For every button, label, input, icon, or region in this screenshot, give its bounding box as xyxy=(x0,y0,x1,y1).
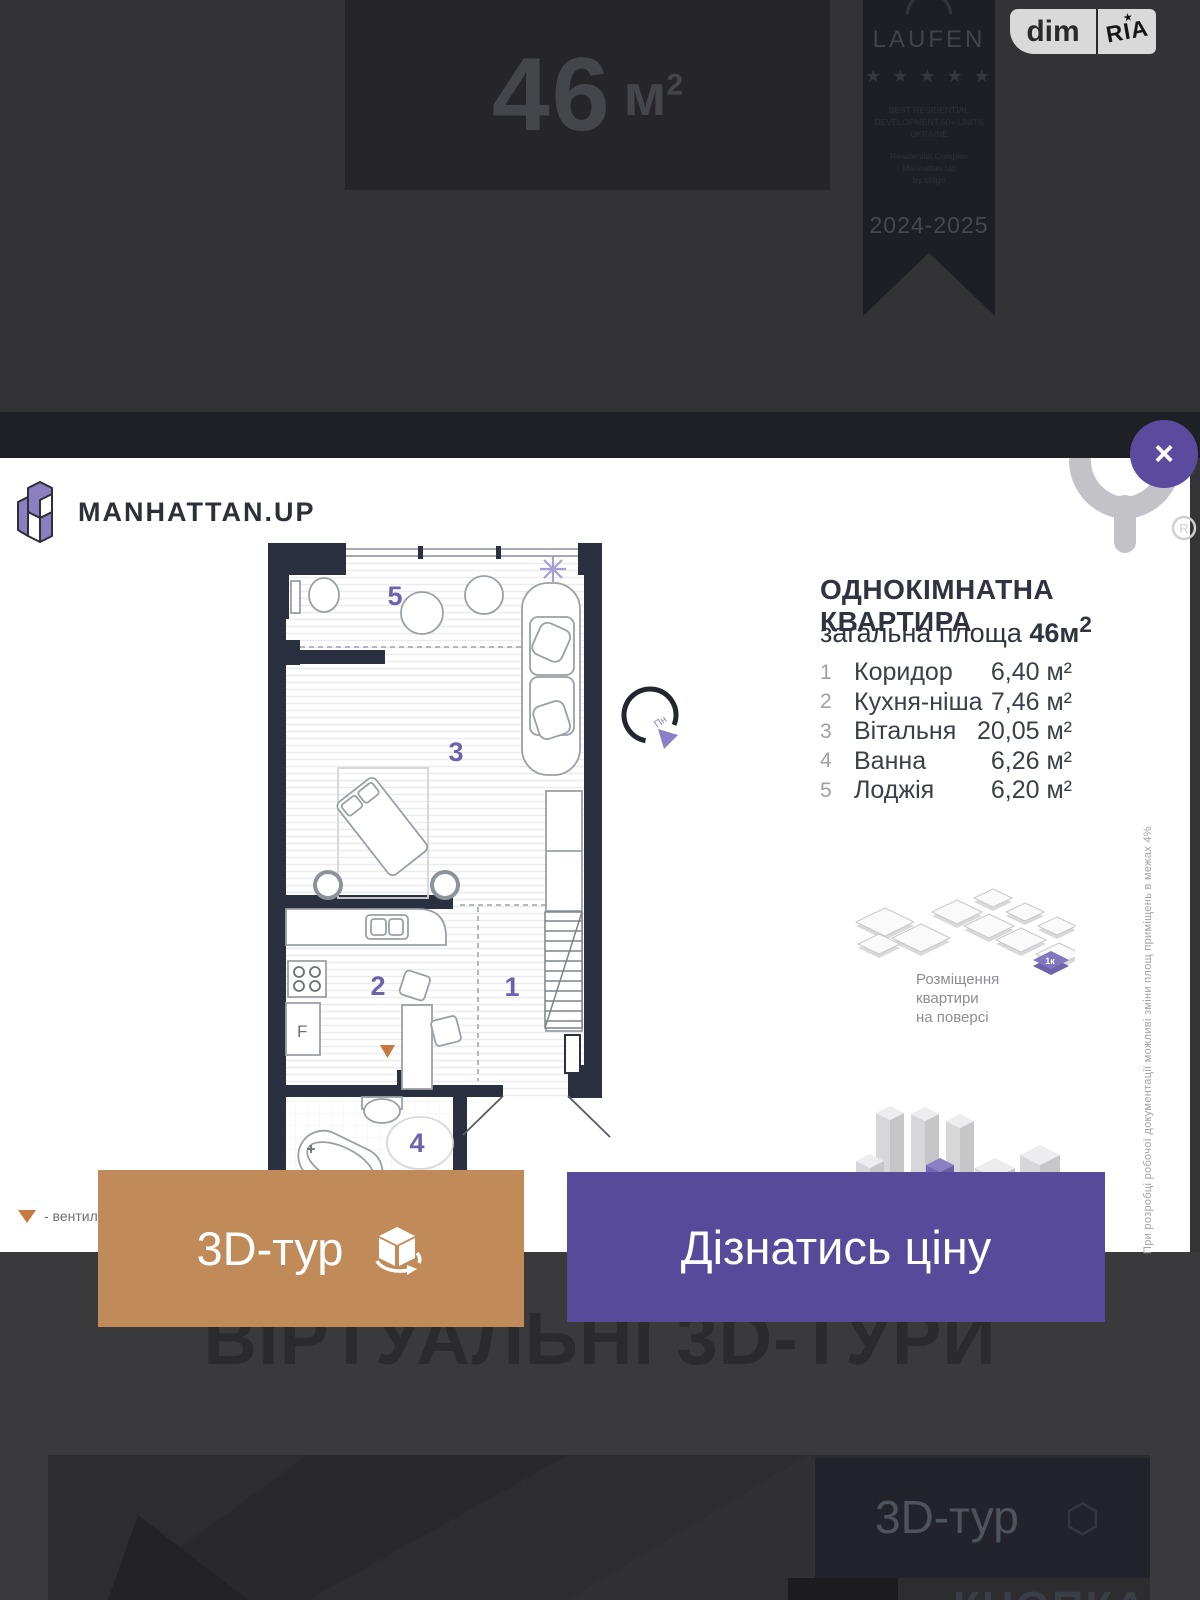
table-row: 2 Кухня-ніша 7,46 м² xyxy=(820,688,1072,718)
developer-logo-text: MANHATTAN.UP xyxy=(78,497,315,528)
tour-button[interactable]: 3D-тур xyxy=(98,1170,524,1327)
fridge-label: F xyxy=(297,1022,307,1041)
apartment-card: MANHATTAN.UP R xyxy=(0,458,1190,1252)
preview-cube-icon: ⬡ xyxy=(1065,1496,1100,1542)
room-number-bath: 4 xyxy=(409,1128,424,1158)
preview-tour-label: 3D-тур xyxy=(875,1490,1019,1544)
award-text: BEST RESIDENTIAL DEVELOPMENT 50+ UNITS U… xyxy=(863,104,995,140)
price-button[interactable]: Дізнатись ціну xyxy=(567,1172,1105,1322)
table-row: 1 Коридор 6,40 м² xyxy=(820,658,1072,688)
preview-panel: 3D-тур ⬡ xyxy=(815,1458,1150,1578)
stairs xyxy=(545,912,582,1028)
room-number-corridor: 1 xyxy=(504,972,519,1002)
award-years: 2024-2025 xyxy=(863,212,995,239)
ria-logo-text: RIA xyxy=(1104,15,1151,49)
area-value: 46 xyxy=(492,36,612,155)
room-number-living: 3 xyxy=(448,737,463,767)
dim-logo-text: dim xyxy=(1010,9,1096,54)
apartment-subtitle: загальна площа 46м2 xyxy=(820,612,1092,649)
close-button[interactable]: × xyxy=(1130,420,1198,488)
area-panel: 46 м2 xyxy=(345,0,830,190)
award-logo-icon xyxy=(906,0,952,14)
vent-legend-icon xyxy=(18,1210,36,1223)
award-stars: ★ ★ ★ ★ ★ xyxy=(863,66,995,87)
floor-placement-label: Розміщення квартири на поверсі xyxy=(916,970,999,1027)
preview-cabinet xyxy=(788,1578,898,1600)
award-brand: LAUFEN xyxy=(863,26,995,54)
3d-cube-icon xyxy=(369,1221,425,1277)
svg-text:Пн: Пн xyxy=(652,714,669,730)
table-row: 4 Ванна 6,26 м² xyxy=(820,747,1072,777)
close-icon: × xyxy=(1154,435,1174,474)
developer-logo-icon xyxy=(14,478,64,546)
entry-door xyxy=(463,1096,610,1137)
preview-caption: КНОПКА xyxy=(953,1583,1148,1600)
table-row: 5 Лоджія 6,20 м² xyxy=(820,776,1072,806)
price-button-label: Дізнатись ціну xyxy=(681,1220,992,1275)
dimria-logo: dim ★ RIA xyxy=(1010,9,1156,54)
room-number-loggia: 5 xyxy=(387,581,402,611)
room-number-kitchen: 2 xyxy=(370,971,385,1001)
svg-text:R: R xyxy=(1179,521,1188,536)
award-project: Residential Complex Manhattan Up by blag… xyxy=(863,150,995,186)
tour-preview: 3D-тур ⬡ КНОПКА xyxy=(48,1455,1150,1600)
door-frame xyxy=(565,1035,580,1073)
area-unit: м2 xyxy=(624,62,684,129)
disclaimer-note: При розробці робочої документації можлив… xyxy=(1142,758,1154,1254)
dark-band xyxy=(0,412,1200,458)
tour-button-label: 3D-тур xyxy=(197,1221,344,1276)
table-row: 3 Вітальня 20,05 м² xyxy=(820,717,1072,747)
floor-plan: F xyxy=(260,525,690,1252)
ria-logo: ★ RIA xyxy=(1098,9,1156,54)
compass-icon: Пн xyxy=(620,685,680,749)
rooms-table: 1 Коридор 6,40 м² 2 Кухня-ніша 7,46 м² 3… xyxy=(820,658,1072,806)
svg-text:1к: 1к xyxy=(1045,956,1055,966)
page: 46 м2 LAUFEN ★ ★ ★ ★ ★ BEST RESIDENTIAL … xyxy=(0,0,1200,1600)
